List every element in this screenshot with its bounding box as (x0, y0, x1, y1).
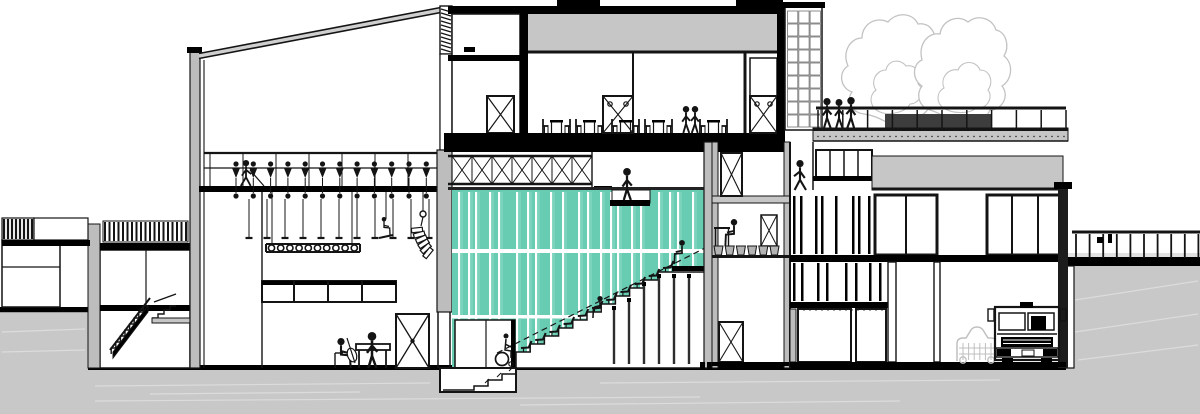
figure-upper-walkway (794, 160, 806, 190)
figure-office-worker (725, 219, 737, 246)
planter-pots (714, 246, 779, 255)
car-silhouette-icon (957, 327, 997, 363)
lighting-truss (266, 192, 360, 252)
right-building (782, 2, 1072, 368)
section-drawing (0, 0, 1200, 414)
line-array-speaker-icon (411, 192, 433, 259)
figure-restaurant-guest (682, 106, 690, 133)
figure-terrace-visitor (823, 98, 832, 128)
glazing-level3 (793, 263, 882, 301)
figure-pianist (367, 332, 377, 368)
section-svg (0, 0, 1200, 414)
box-truck-icon (988, 302, 1066, 362)
road-case-icon (396, 314, 429, 368)
fly-bars (246, 199, 433, 238)
orchestra-pit-stair (440, 367, 516, 392)
figure-restaurant-guest (691, 106, 699, 133)
figure-rigger-bosun-chair (382, 217, 390, 236)
figure-fly-gallery-technician (241, 160, 251, 186)
glazing-level2 (793, 196, 871, 254)
stage (262, 192, 429, 368)
figure-terrace-visitor (846, 97, 855, 128)
mid-strip-offices (712, 142, 790, 368)
proscenium-wall (437, 54, 452, 368)
